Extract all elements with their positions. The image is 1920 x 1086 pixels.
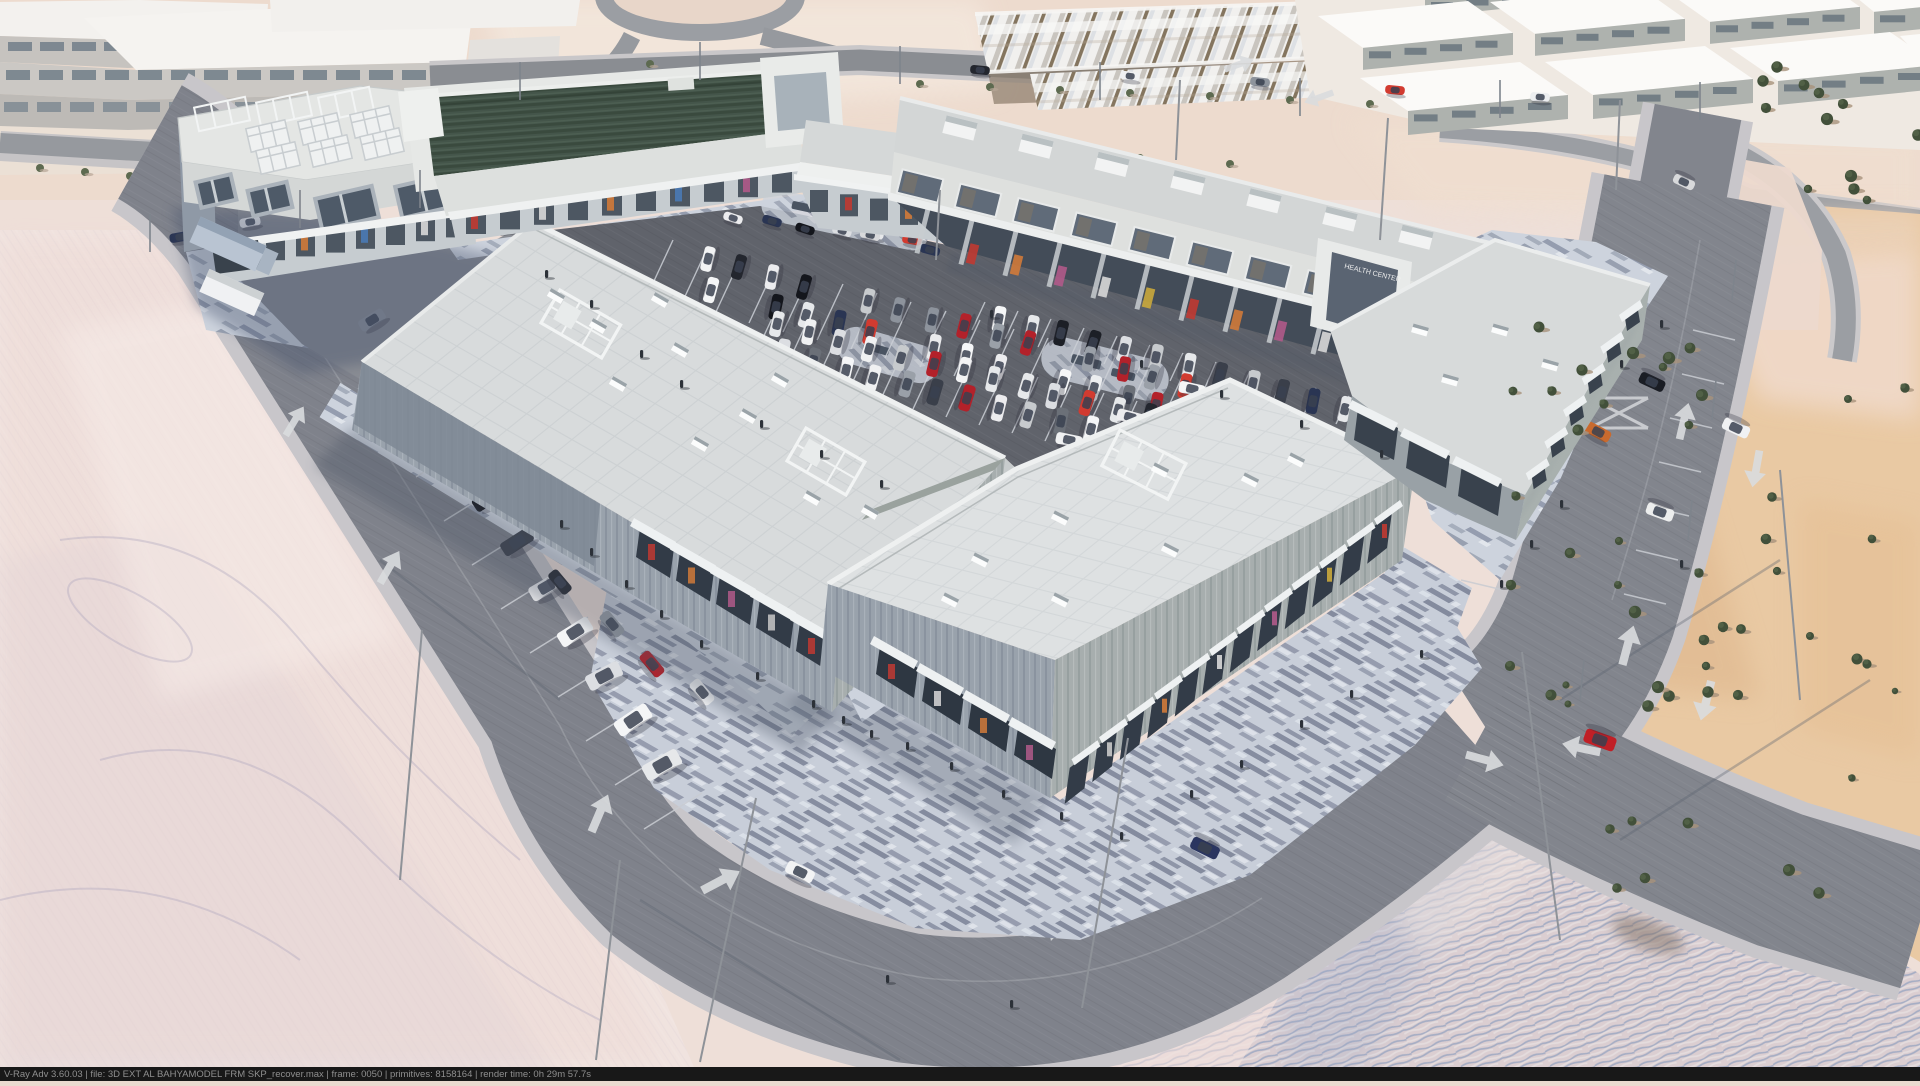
svg-text:V-Ray Adv 3.60.03 | file: 3D E: V-Ray Adv 3.60.03 | file: 3D EXT AL BAHY… [4, 1069, 591, 1080]
